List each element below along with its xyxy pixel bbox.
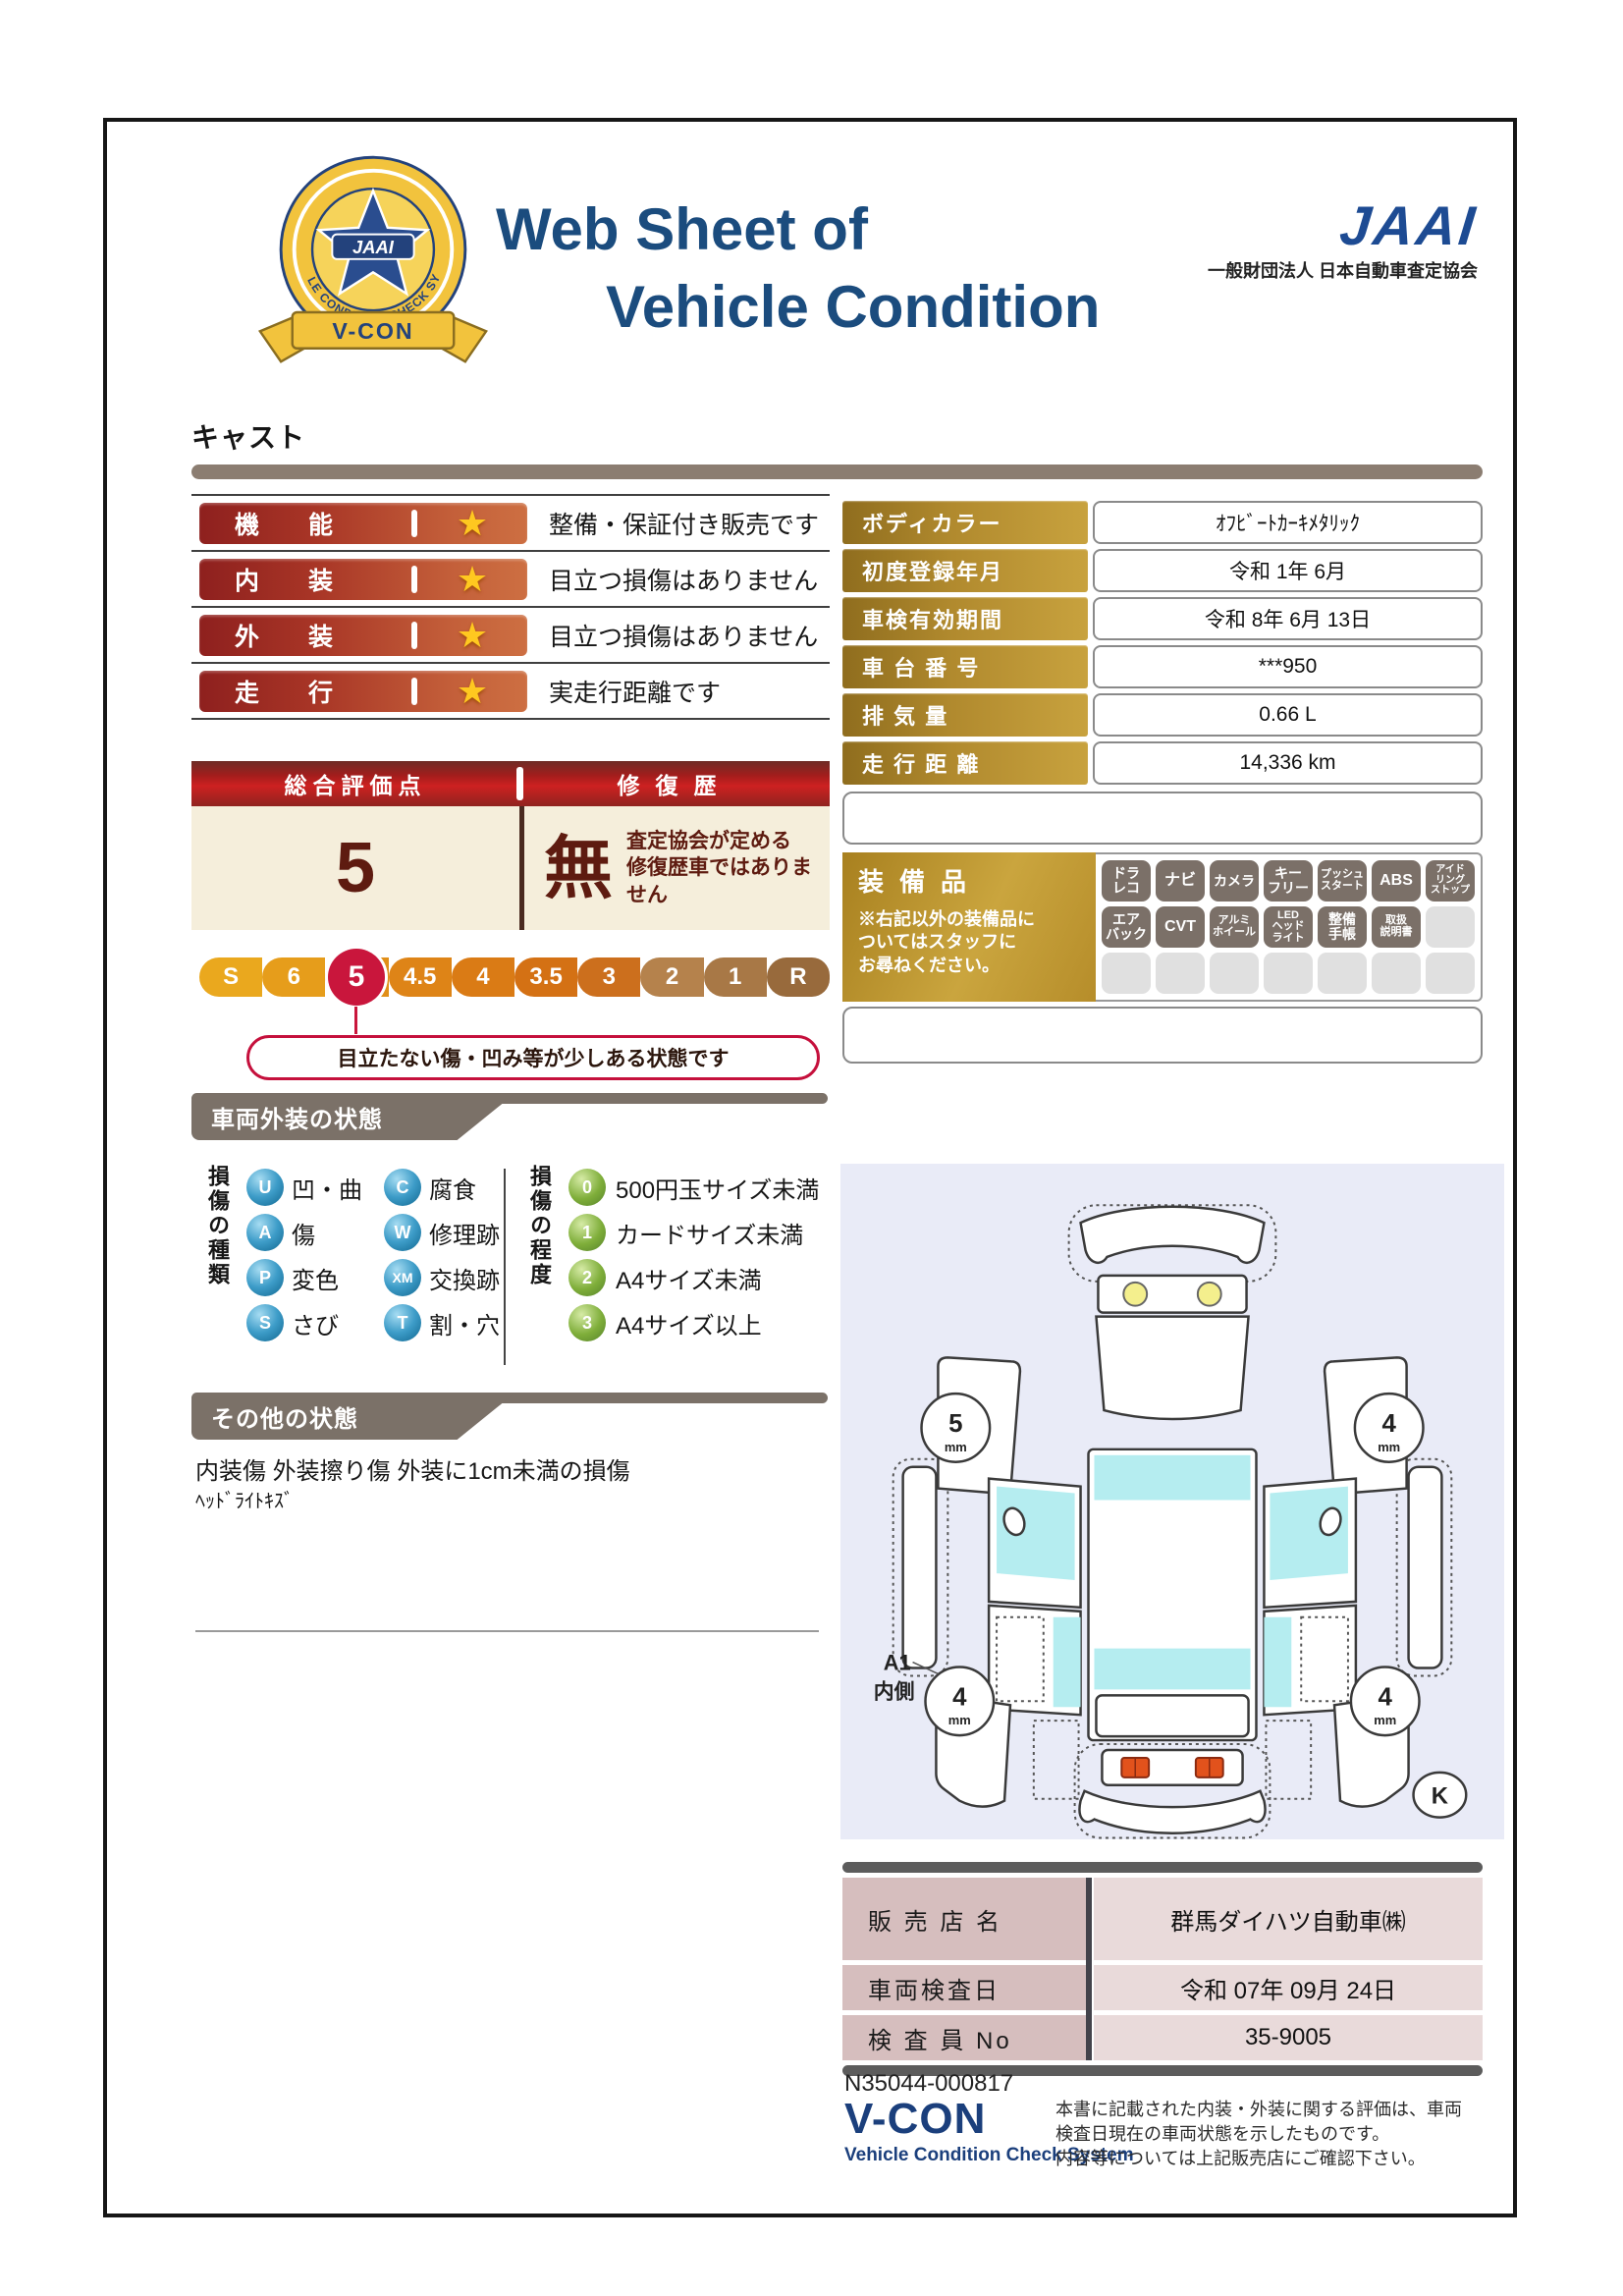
list-item: C腐食 [384,1165,500,1210]
empty-note-box [842,1007,1483,1064]
divider-line [195,1630,819,1632]
band-tab: 車両外装の状態 [191,1093,515,1140]
legend-divider [504,1169,506,1365]
equipment-badge-abs: ABS [1372,860,1421,902]
equipment-badge-push-start: プッシュ スタート [1318,860,1367,902]
damage-kind-legend: 損傷の種類 U凹・曲 A傷 P変色 Sさび C腐食 W修理跡 XM交換跡 T割・… [201,1165,500,1346]
degree-label: 500円玉サイズ未満 [616,1171,819,1205]
annotation-code: A1 [884,1650,911,1674]
damage-kind-label: 腐食 [429,1171,476,1205]
list-item: Sさび [246,1300,362,1345]
repair-history-value: 無 [544,834,613,902]
damage-code-w: W [384,1214,421,1251]
empty-note-box [842,792,1483,845]
equipment-section: 装備品 ※右記以外の装備品に ついてはスタッフに お尋ねください。 ドラ レコ … [842,852,1483,1002]
damage-degree-title: 損傷の程度 [523,1165,555,1346]
rating-row-interior: 内装 ★ 目立つ損傷はありません [191,550,830,606]
other-condition-line2: ﾍｯﾄﾞﾗｲﾄｷｽﾞ [195,1485,294,1513]
list-item: 0500円玉サイズ未満 [568,1165,819,1210]
star-icon: ★ [417,562,527,597]
page-title-line2: Vehicle Condition [496,268,1100,346]
bubble-connector [354,1007,357,1034]
scale-seg-6: 6 [262,957,325,997]
tire-unit: mm [1378,1440,1400,1454]
damage-kind-label: 傷 [292,1216,315,1250]
rating-label: 機能 [199,506,411,541]
equipment-badge-manual: 取扱 説明書 [1372,906,1421,948]
tire-unit: mm [1374,1713,1396,1727]
rating-pill: 外装 ★ [199,615,527,656]
title-rule [191,465,1483,479]
document-number: N35044-000817 [844,2070,1013,2098]
rating-description: 整備・保証付き販売です [549,506,819,541]
damage-code-u: U [246,1169,284,1206]
repair-history-title: 修復歴 [519,767,830,800]
corner-mark-letter: K [1432,1783,1448,1810]
left-rear-window [1054,1617,1081,1707]
rating-pill: 機能 ★ [199,503,527,544]
damage-degree-legend: 損傷の程度 0500円玉サイズ未満 1カードサイズ未満 2A4サイズ未満 3A4… [523,1165,819,1346]
dealer-name-value: 群馬ダイハツ自動車㈱ [1094,1878,1483,1960]
equipment-badge-empty [1318,953,1367,994]
other-condition-line1: 内装傷 外装擦り傷 外装に1cm未満の損傷 [195,1451,630,1486]
equipment-badge-idling-stop: アイド リング ストップ [1426,860,1475,902]
damage-kind-title: 損傷の種類 [201,1165,233,1346]
equipment-badge-cvt: CVT [1156,906,1205,948]
dealer-table: 販 売 店 名 群馬ダイハツ自動車㈱ 車両検査日 令和 07年 09月 24日 … [842,1862,1483,2076]
list-item: P変色 [246,1255,362,1300]
score-scale: S 6 4.5 4 3.5 3 2 1 R 5 目立たない傷・凹み等が少しある状… [199,957,830,1087]
damage-kind-label: さび [292,1306,339,1340]
front-bumper [1069,1205,1276,1282]
headlight-panel [1098,1276,1246,1313]
section-exterior-condition: 車両外装の状態 [191,1093,828,1140]
list-item: 1カードサイズ未満 [568,1210,819,1255]
table-top-bar [842,1862,1483,1873]
overall-score-value: 5 [191,806,519,930]
rear-bumper [1075,1744,1271,1837]
scale-seg-3: 3 [577,957,640,997]
list-item: T割・穴 [384,1300,500,1345]
rating-row-mileage: 走行 ★ 実走行距離です [191,662,830,718]
car-damage-diagram: 5 mm 4 mm 4 mm 4 mm A1 内側 [840,1164,1504,1839]
table-row: 車 台 番 号 ***950 [842,645,1483,688]
rating-row-exterior: 外装 ★ 目立つ損傷はありません [191,606,830,662]
rating-label: 走行 [199,674,411,709]
tire-front-right: 4 mm [1355,1394,1424,1462]
scale-seg-1: 1 [704,957,767,997]
info-value-displacement: 0.66 L [1093,693,1483,737]
hood-panel [1096,1317,1248,1419]
rating-label: 内装 [199,562,411,597]
equipment-badge-service-book: 整備 手帳 [1318,906,1367,948]
cabin-roof [1089,1449,1257,1740]
scale-seg-r: R [767,957,830,997]
tire-unit: mm [945,1440,967,1454]
scale-seg-4: 4 [452,957,514,997]
table-row: 検 査 員 No 35-9005 [842,2015,1483,2060]
tire-front-left-value: 5 [948,1410,962,1438]
scale-seg-s: S [199,957,262,997]
damage-kind-label: 交換跡 [429,1261,500,1295]
vcon-badge-icon: VEHICLE CONDITION CHECK SYSTEM JAAI V-CO… [226,136,520,410]
rating-pill: 内装 ★ [199,559,527,600]
equipment-badge-keyfree: キー フリー [1264,860,1313,902]
vcon-logo: V-CON [844,2098,986,2141]
table-row: 排 気 量 0.66 L [842,693,1483,737]
equipment-badge-empty [1426,906,1475,948]
damage-kind-label: 凹・曲 [292,1171,362,1205]
rating-list: 機能 ★ 整備・保証付き販売です 内装 ★ 目立つ損傷はありません 外装 ★ 目… [191,494,830,720]
inspection-date-label: 車両検査日 [842,1965,1086,2010]
list-item: XM交換跡 [384,1255,500,1300]
dealer-name-label: 販 売 店 名 [842,1878,1086,1960]
headlight-left-icon [1123,1283,1147,1306]
score-description-bubble: 目立たない傷・凹み等が少しある状態です [246,1035,820,1080]
info-value-body-color: ｵﾌﾋﾞｰﾄｶｰｷﾒﾀﾘｯｸ [1093,501,1483,544]
degree-code-1: 1 [568,1214,606,1251]
list-item: W修理跡 [384,1210,500,1255]
page-title-line1: Web Sheet of [496,191,1100,268]
degree-label: A4サイズ以上 [616,1306,762,1340]
damage-kind-label: 割・穴 [429,1306,500,1340]
sheet-page: VEHICLE CONDITION CHECK SYSTEM JAAI V-CO… [103,118,1517,2217]
inspector-no-value: 35-9005 [1094,2015,1483,2060]
scale-seg-3-5: 3.5 [514,957,577,997]
inspector-no-label: 検 査 員 No [842,2015,1086,2060]
list-item: 2A4サイズ未満 [568,1255,819,1300]
right-front-window [1270,1487,1348,1580]
vehicle-name: キャスト [191,416,305,456]
overall-score-box: 総合評価点 修復歴 5 無 査定協会が定める 修復歴車ではありません [191,761,830,930]
damage-code-a: A [246,1214,284,1251]
tire-unit: mm [948,1713,971,1727]
rating-row-function: 機能 ★ 整備・保証付き販売です [191,494,830,550]
damage-code-c: C [384,1169,421,1206]
equipment-badge-empty [1264,953,1313,994]
list-item: A傷 [246,1210,362,1255]
tire-rear-right: 4 mm [1351,1667,1420,1736]
overall-score-body: 5 無 査定協会が定める 修復歴車ではありません [191,806,830,930]
info-label-displacement: 排 気 量 [842,693,1088,737]
degree-code-0: 0 [568,1169,606,1206]
damage-degree-list: 0500円玉サイズ未満 1カードサイズ未満 2A4サイズ未満 3A4サイズ以上 [568,1165,819,1346]
equipment-badge-empty [1372,953,1421,994]
dealer-rows: 販 売 店 名 群馬ダイハツ自動車㈱ 車両検査日 令和 07年 09月 24日 … [842,1878,1483,2060]
info-label-chassis-no: 車 台 番 号 [842,645,1088,688]
degree-label: A4サイズ未満 [616,1261,762,1295]
section-title: 車両外装の状態 [191,1100,383,1134]
damage-kind-grid: U凹・曲 A傷 P変色 Sさび C腐食 W修理跡 XM交換跡 T割・穴 [246,1165,500,1346]
info-label-first-registration: 初度登録年月 [842,549,1088,592]
equipment-badge-empty [1210,953,1259,994]
table-row: ボディカラー ｵﾌﾋﾞｰﾄｶｰｷﾒﾀﾘｯｸ [842,501,1483,544]
left-sill [903,1467,937,1668]
headlight-right-icon [1198,1283,1221,1306]
windshield-glass [1094,1455,1250,1501]
rating-description: 実走行距離です [549,674,721,709]
equipment-badge-alloy-wheels: アルミ ホイール [1210,906,1259,948]
equipment-note: ※右記以外の装備品に ついてはスタッフに お尋ねください。 [858,908,1096,977]
overall-score-header: 総合評価点 修復歴 [191,761,830,806]
table-row: 車両検査日 令和 07年 09月 24日 [842,1965,1483,2010]
table-row: 車検有効期間 令和 8年 6月 13日 [842,597,1483,640]
right-rear-window [1264,1617,1291,1707]
star-icon: ★ [417,674,527,709]
damage-code-t: T [384,1304,421,1341]
inspection-date-value: 令和 07年 09月 24日 [1094,1965,1483,2010]
info-value-chassis-no: ***950 [1093,645,1483,688]
jaai-subtitle: 一般財団法人 日本自動車査定協会 [1148,257,1478,283]
equipment-badge-led-headlight: LED ヘッド ライト [1264,906,1313,948]
right-sill [1409,1467,1442,1668]
table-row: 販 売 店 名 群馬ダイハツ自動車㈱ [842,1878,1483,1960]
star-icon: ★ [417,506,527,541]
table-divider [1086,1878,1092,2060]
page-title: Web Sheet of Vehicle Condition [496,191,1100,346]
badge-ribbon-text: V-CON [332,318,413,344]
damage-kind-label: 修理跡 [429,1216,500,1250]
section-other-condition: その他の状態 [191,1393,828,1440]
tire-front-right-value: 4 [1382,1410,1397,1438]
list-item: 3A4サイズ以上 [568,1300,819,1345]
rating-pill: 走行 ★ [199,671,527,712]
equipment-badge-empty [1156,953,1205,994]
damage-kind-label: 変色 [292,1261,339,1295]
disclaimer-text: 本書に記載された内装・外装に関する評価は、車両 検査日現在の車両状態を示したもの… [1055,2098,1489,2172]
degree-code-2: 2 [568,1259,606,1296]
rating-label: 外装 [199,618,411,653]
rating-description: 目立つ損傷はありません [549,562,818,597]
info-label-inspection-valid: 車検有効期間 [842,597,1088,640]
equipment-badge-drive-recorder: ドラ レコ [1102,860,1151,902]
tire-rear-left-value: 4 [952,1683,967,1711]
overall-score-title: 総合評価点 [191,767,519,800]
degree-label: カードサイズ未満 [616,1216,803,1250]
repair-history-note: 査定協会が定める 修復歴車ではありません [626,828,830,908]
equipment-badge-empty [1102,953,1151,994]
equipment-title: 装備品 [858,862,1096,899]
corner-mark: K [1414,1773,1467,1818]
header-tick [516,767,523,800]
rating-description: 目立つ損傷はありません [549,618,818,653]
equipment-badge-camera: カメラ [1210,860,1259,902]
scale-seg-2: 2 [640,957,703,997]
equipment-badge-empty [1426,953,1475,994]
table-row: 走 行 距 離 14,336 km [842,741,1483,785]
scale-seg-4-5: 4.5 [389,957,452,997]
equipment-badge-airbag: エア バック [1102,906,1151,948]
annotation-side: 内側 [874,1679,915,1703]
list-item: U凹・曲 [246,1165,362,1210]
info-value-first-registration: 令和 1年 6月 [1093,549,1483,592]
equipment-grid: ドラ レコ ナビ カメラ キー フリー プッシュ スタート ABS アイド リン… [1096,852,1483,1002]
repair-history-cell: 無 査定協会が定める 修復歴車ではありません [524,806,830,930]
tire-rear-left: 4 mm [925,1667,994,1736]
vehicle-info-table: ボディカラー ｵﾌﾋﾞｰﾄｶｰｷﾒﾀﾘｯｸ 初度登録年月 令和 1年 6月 車検… [842,501,1483,790]
equipment-badge-navi: ナビ [1156,860,1205,902]
damage-code-s: S [246,1304,284,1341]
degree-code-3: 3 [568,1304,606,1341]
rear-window-glass [1094,1649,1250,1690]
star-icon: ★ [417,618,527,653]
score-scale-bar: S 6 4.5 4 3.5 3 2 1 R [199,957,830,997]
band-tab: その他の状態 [191,1393,515,1440]
badge-center-text: JAAI [352,237,395,257]
trunk-panel [1096,1695,1248,1736]
tire-front-left: 5 mm [922,1394,991,1462]
jaai-logo: JAAI [1337,198,1480,253]
info-label-mileage: 走 行 距 離 [842,741,1088,785]
section-title: その他の状態 [191,1399,358,1434]
equipment-header: 装備品 ※右記以外の装備品に ついてはスタッフに お尋ねください。 [842,852,1096,1002]
damage-code-p: P [246,1259,284,1296]
damage-code-xm: XM [384,1259,421,1296]
table-row: 初度登録年月 令和 1年 6月 [842,549,1483,592]
selected-score-marker: 5 [328,949,385,1006]
info-label-body-color: ボディカラー [842,501,1088,544]
tire-rear-right-value: 4 [1379,1683,1393,1711]
jaai-logo-block: JAAI 一般財団法人 日本自動車査定協会 [1148,198,1478,283]
left-front-window [997,1487,1075,1580]
info-value-inspection-valid: 令和 8年 6月 13日 [1093,597,1483,640]
info-value-mileage: 14,336 km [1093,741,1483,785]
